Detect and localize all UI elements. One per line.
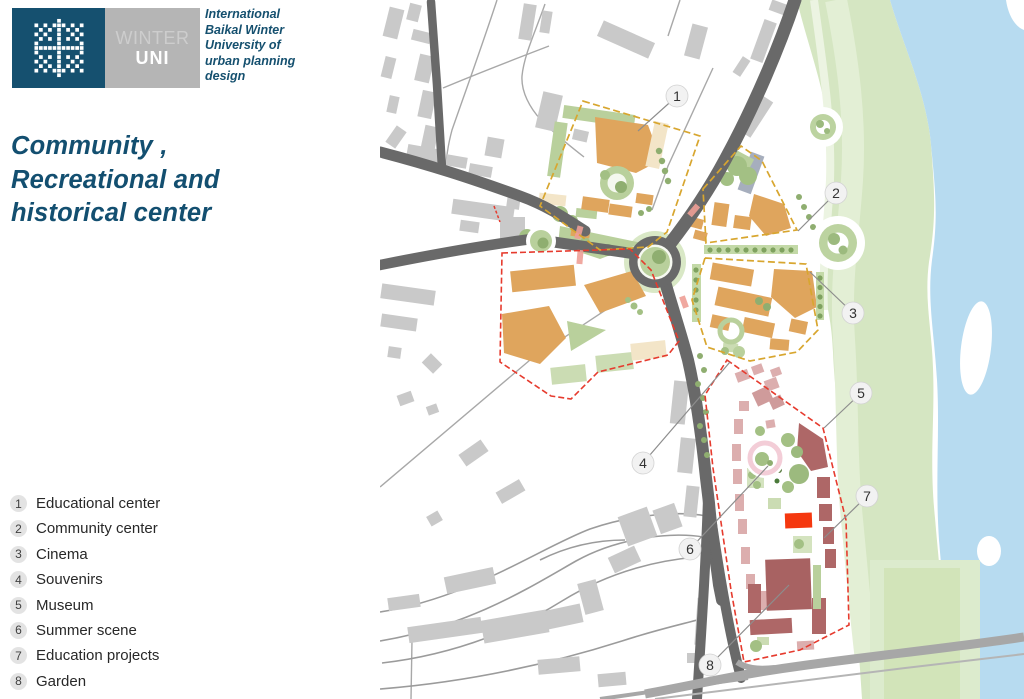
svg-text:4: 4	[639, 455, 647, 471]
legend: 1Educational center2Community center3Cin…	[10, 495, 160, 698]
riverside-park	[870, 560, 980, 699]
legend-item: 8Garden	[10, 673, 160, 690]
legend-item-number: 2	[10, 520, 27, 537]
svg-text:1: 1	[673, 88, 681, 104]
masterplan-map: 12345678	[380, 0, 1024, 699]
svg-text:2: 2	[832, 185, 840, 201]
island	[977, 536, 1001, 566]
legend-item: 6Summer scene	[10, 622, 160, 639]
legend-item: 3Cinema	[10, 546, 160, 563]
legend-item-number: 3	[10, 546, 27, 563]
svg-text:6: 6	[686, 541, 694, 557]
legend-item-label: Educational center	[36, 495, 160, 512]
legend-item-number: 5	[10, 597, 27, 614]
legend-item-label: Summer scene	[36, 622, 137, 639]
logo-block	[12, 8, 105, 88]
legend-item-number: 8	[10, 673, 27, 690]
svg-text:3: 3	[849, 305, 857, 321]
legend-item: 4Souvenirs	[10, 571, 160, 588]
legend-item-label: Souvenirs	[36, 571, 103, 588]
svg-text:8: 8	[706, 657, 714, 673]
logo-wordmark: WINTER UNI	[105, 8, 200, 88]
map-canvas: 12345678	[380, 0, 1024, 699]
legend-item: 2Community center	[10, 520, 160, 537]
snowflake-icon	[25, 14, 93, 82]
legend-item-number: 4	[10, 571, 27, 588]
legend-item: 7Education projects	[10, 647, 160, 664]
legend-item-number: 7	[10, 647, 27, 664]
legend-item: 1Educational center	[10, 495, 160, 512]
legend-item-number: 1	[10, 495, 27, 512]
district-museum	[732, 363, 836, 652]
slide: WINTER UNI International Baikal Winter U…	[0, 0, 1024, 699]
logo-uni-label: UNI	[136, 48, 170, 68]
svg-text:7: 7	[863, 488, 871, 504]
district-cinema	[692, 262, 824, 358]
legend-item-number: 6	[10, 622, 27, 639]
legend-item-label: Education projects	[36, 647, 159, 664]
legend-item-label: Garden	[36, 673, 86, 690]
svg-text:5: 5	[857, 385, 865, 401]
legend-item-label: Community center	[36, 520, 158, 537]
legend-item: 5Museum	[10, 597, 160, 614]
university-name: International Baikal Winter University o…	[205, 7, 295, 85]
legend-item-label: Museum	[36, 597, 94, 614]
logo-winter-label: WINTER	[116, 28, 190, 48]
page-title: Community , Recreational and historical …	[11, 130, 220, 231]
legend-item-label: Cinema	[36, 546, 88, 563]
